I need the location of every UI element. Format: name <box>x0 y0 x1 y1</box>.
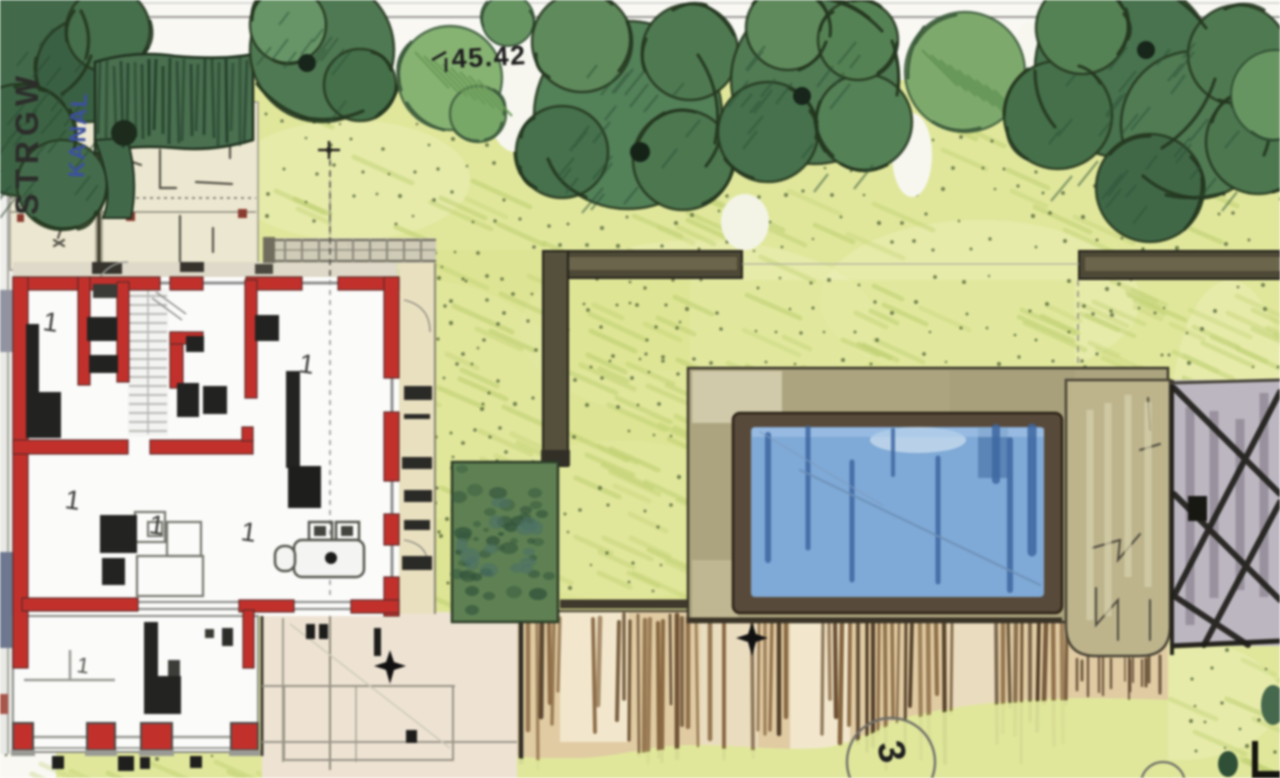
svg-text:KANAL: KANAL <box>63 92 92 178</box>
svg-text:45.42: 45.42 <box>451 40 528 74</box>
svg-text:STRGW: STRGW <box>9 71 45 215</box>
